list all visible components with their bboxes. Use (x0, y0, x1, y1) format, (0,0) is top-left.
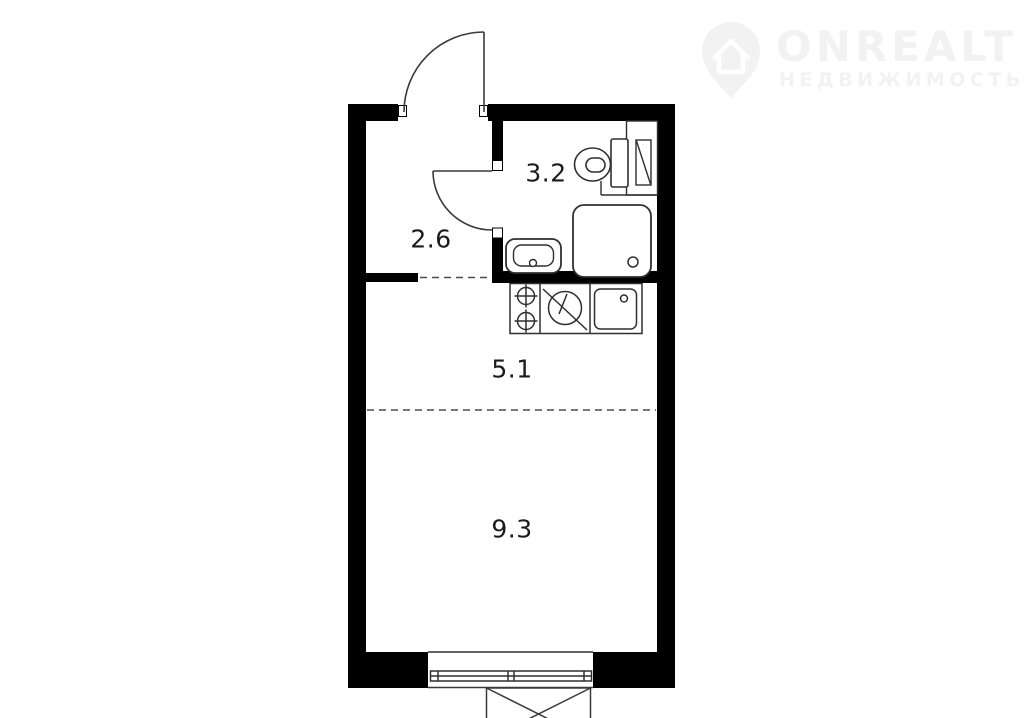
room-label-bathroom: 3.2 (525, 159, 566, 188)
wall-left (348, 104, 366, 688)
wall-right (657, 104, 675, 688)
entry-jamb-left (399, 106, 407, 117)
washbasin (506, 239, 561, 273)
wall-top-right (488, 104, 675, 121)
shower-tray (573, 205, 651, 277)
bath-jamb-bottom (493, 228, 503, 238)
shower-drain (628, 257, 638, 267)
kitchen-sink-bowl (595, 289, 637, 329)
balcony-cross-2 (487, 688, 591, 718)
toilet-bowl-inner (586, 158, 605, 172)
entry-door (404, 32, 484, 112)
toilet (575, 139, 629, 187)
window (428, 652, 593, 681)
shower-tray-pan (573, 205, 651, 277)
toilet-tank (611, 139, 628, 187)
room-label-living-room: 9.3 (491, 515, 532, 544)
washbasin-faucet (530, 260, 537, 267)
room-label-kitchen: 5.1 (491, 355, 532, 384)
kitchen-block (510, 284, 642, 334)
balcony (428, 688, 593, 718)
kitchen-sink (595, 289, 637, 329)
room-label-hallway: 2.6 (410, 225, 451, 254)
entry-door-swing-arc (404, 32, 484, 112)
wall-bottom-right (593, 652, 675, 688)
wall-hall-stub (366, 273, 418, 282)
floor-plan-page: ONREALT НЕДВИЖИМОСТЬ (0, 0, 1024, 718)
bathroom-door (433, 171, 492, 230)
bath-jamb-top (493, 161, 503, 171)
wall-bottom-left (348, 652, 428, 688)
kitchen-sink-faucet (621, 295, 628, 302)
bathroom-door-swing-arc (433, 171, 492, 230)
wall-bath-divider-upper (492, 121, 503, 160)
